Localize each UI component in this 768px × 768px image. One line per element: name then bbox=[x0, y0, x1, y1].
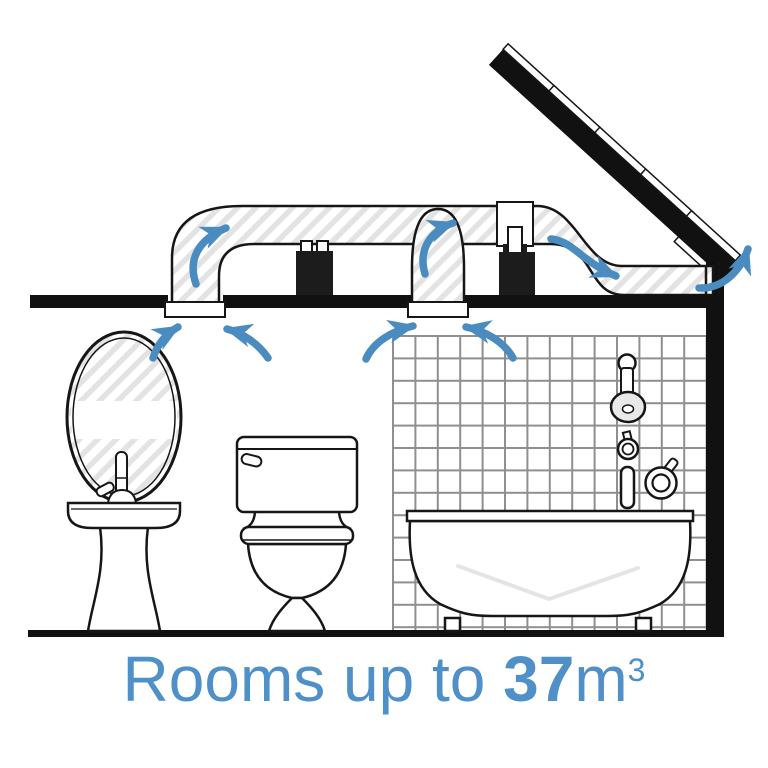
right-wall bbox=[706, 262, 724, 637]
caption-prefix: Rooms up to bbox=[123, 643, 504, 715]
airflow-arrow-icon bbox=[153, 327, 178, 358]
ventilation-diagram: Rooms up to 37m3 bbox=[0, 0, 768, 768]
ceiling-vent-icon bbox=[408, 302, 468, 317]
inline-fan-icon bbox=[296, 241, 333, 298]
caption-unit: m bbox=[574, 643, 627, 715]
caption-exponent: 3 bbox=[628, 652, 646, 688]
ceiling-vent-icon bbox=[165, 302, 225, 317]
airflow-arrow-icon bbox=[227, 329, 268, 358]
tub-foot-icon bbox=[636, 618, 651, 631]
tub-foot-icon bbox=[445, 618, 460, 631]
toilet-icon bbox=[237, 437, 357, 631]
shower-handle-icon bbox=[621, 467, 634, 508]
caption: Rooms up to 37m3 bbox=[0, 644, 768, 714]
caption-volume: 37 bbox=[503, 643, 574, 715]
inline-fan-icon bbox=[497, 202, 535, 298]
ceiling bbox=[30, 295, 724, 308]
